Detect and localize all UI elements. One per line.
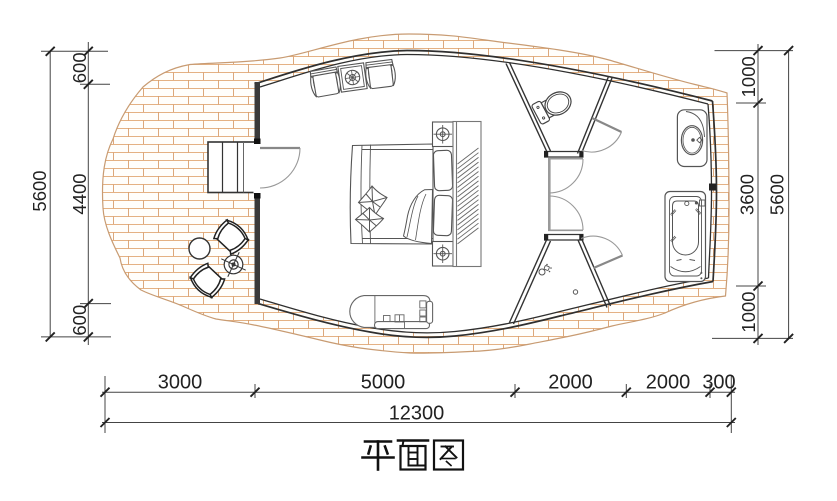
svg-text:300: 300 <box>702 372 735 394</box>
svg-text:4400: 4400 <box>69 173 90 214</box>
svg-text:5600: 5600 <box>767 174 788 215</box>
svg-text:1000: 1000 <box>738 56 759 97</box>
svg-text:1000: 1000 <box>738 291 759 332</box>
svg-text:3600: 3600 <box>737 174 758 215</box>
svg-text:600: 600 <box>69 52 90 83</box>
svg-text:12300: 12300 <box>389 403 445 425</box>
svg-text:600: 600 <box>69 305 90 336</box>
svg-text:5000: 5000 <box>361 372 406 394</box>
svg-text:3000: 3000 <box>158 372 203 394</box>
svg-text:2000: 2000 <box>646 372 691 394</box>
svg-text:5600: 5600 <box>29 170 50 211</box>
svg-text:2000: 2000 <box>548 372 593 394</box>
